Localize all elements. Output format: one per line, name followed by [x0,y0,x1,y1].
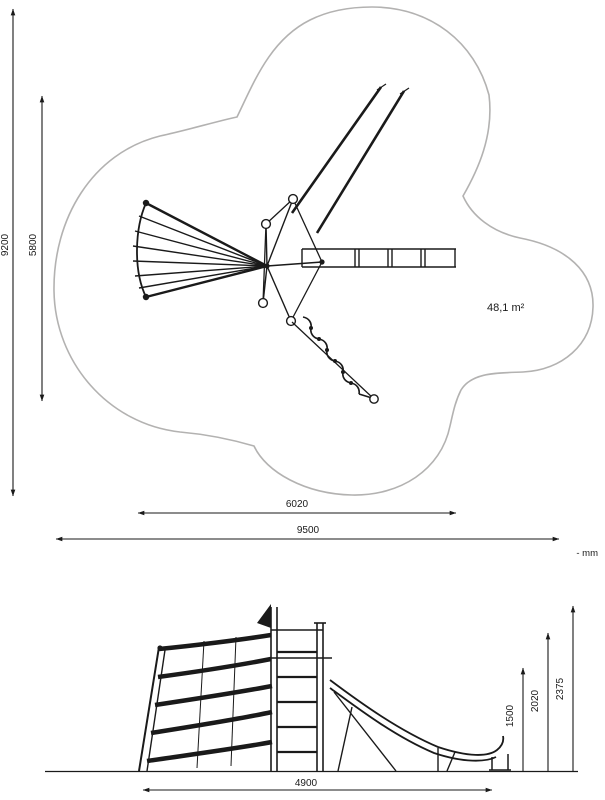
plan-dimension-lines [13,9,559,539]
height-top-label: 2375 [555,667,567,711]
equipment-width-label: 6020 [272,499,322,511]
height-mid-label: 2020 [530,679,542,723]
zigzag-climber-plan [292,317,378,403]
units-note: - mm [550,548,598,560]
safety-zone-width-label: 9500 [283,525,333,537]
drawing-canvas [0,0,605,800]
tower-plan [259,195,325,326]
slide-beams-plan [292,84,409,233]
flag [257,604,271,628]
safety-area-outline [54,7,593,495]
safety-zone-depth-label: 9200 [0,223,12,267]
side-elevation [45,604,578,790]
equipment-depth-label: 5800 [28,223,40,267]
equipment-length-label: 4900 [281,778,331,790]
monkey-bars-plan [302,249,456,267]
net-climber-side [139,635,272,771]
technical-drawing-sheet: 9200 5800 6020 9500 48,1 m² - mm 4900 15… [0,0,605,800]
slide-side [330,680,511,771]
safety-area-size-label: 48,1 m² [487,302,524,314]
net-climber-plan [133,200,267,300]
height-low-label: 1500 [505,694,517,738]
